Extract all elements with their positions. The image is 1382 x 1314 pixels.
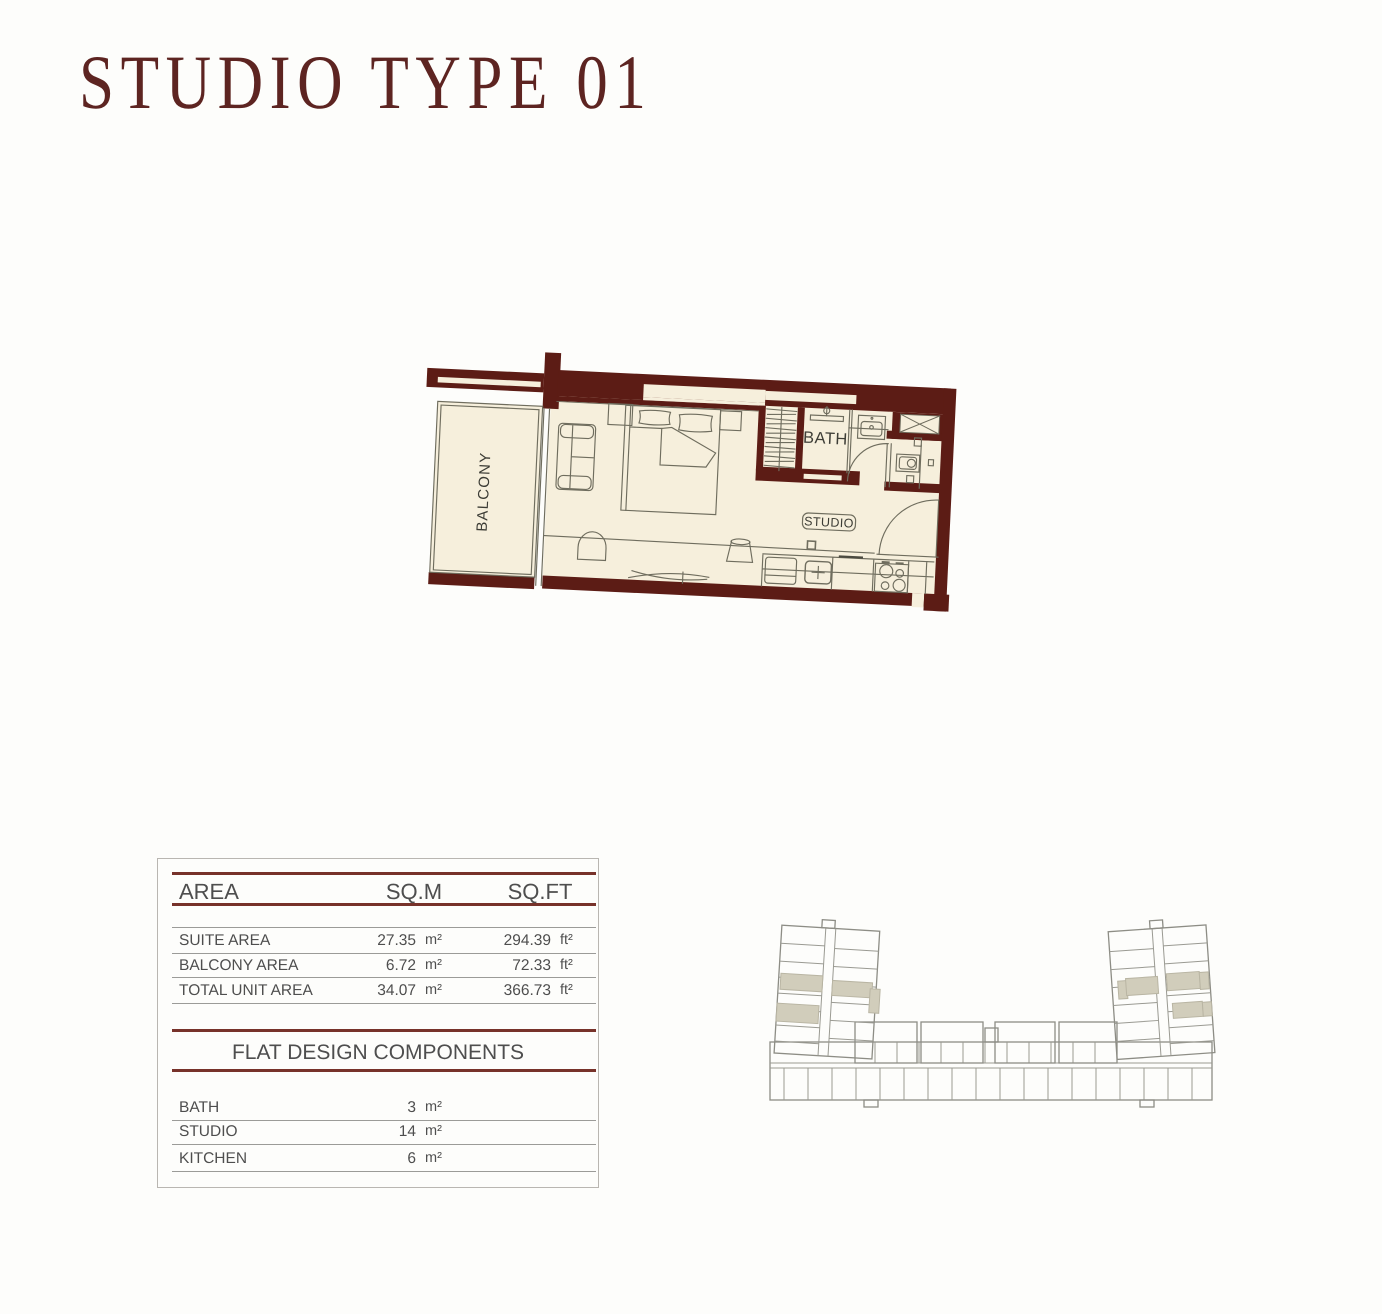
svg-text:BATH: BATH: [803, 429, 849, 449]
svg-text:STUDIO: STUDIO: [804, 514, 854, 530]
